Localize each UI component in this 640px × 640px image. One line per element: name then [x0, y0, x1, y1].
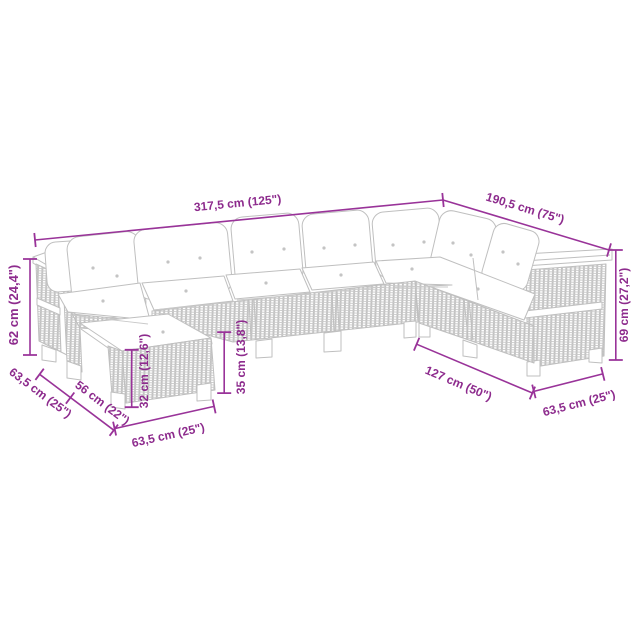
svg-text:63,5 cm (25"): 63,5 cm (25") [130, 420, 206, 450]
svg-text:35 cm (13,8"): 35 cm (13,8") [234, 320, 248, 394]
svg-text:63,5 cm (25"): 63,5 cm (25") [541, 387, 617, 419]
svg-text:127 cm (50"): 127 cm (50") [423, 363, 494, 404]
svg-text:62 cm (24,4"): 62 cm (24,4") [6, 265, 21, 346]
svg-text:317,5 cm (125"): 317,5 cm (125") [193, 192, 282, 214]
svg-text:69 cm (27,2"): 69 cm (27,2") [617, 268, 631, 342]
svg-text:190,5 cm (75"): 190,5 cm (75") [484, 190, 566, 227]
svg-text:32 cm (12,6"): 32 cm (12,6") [137, 334, 151, 408]
